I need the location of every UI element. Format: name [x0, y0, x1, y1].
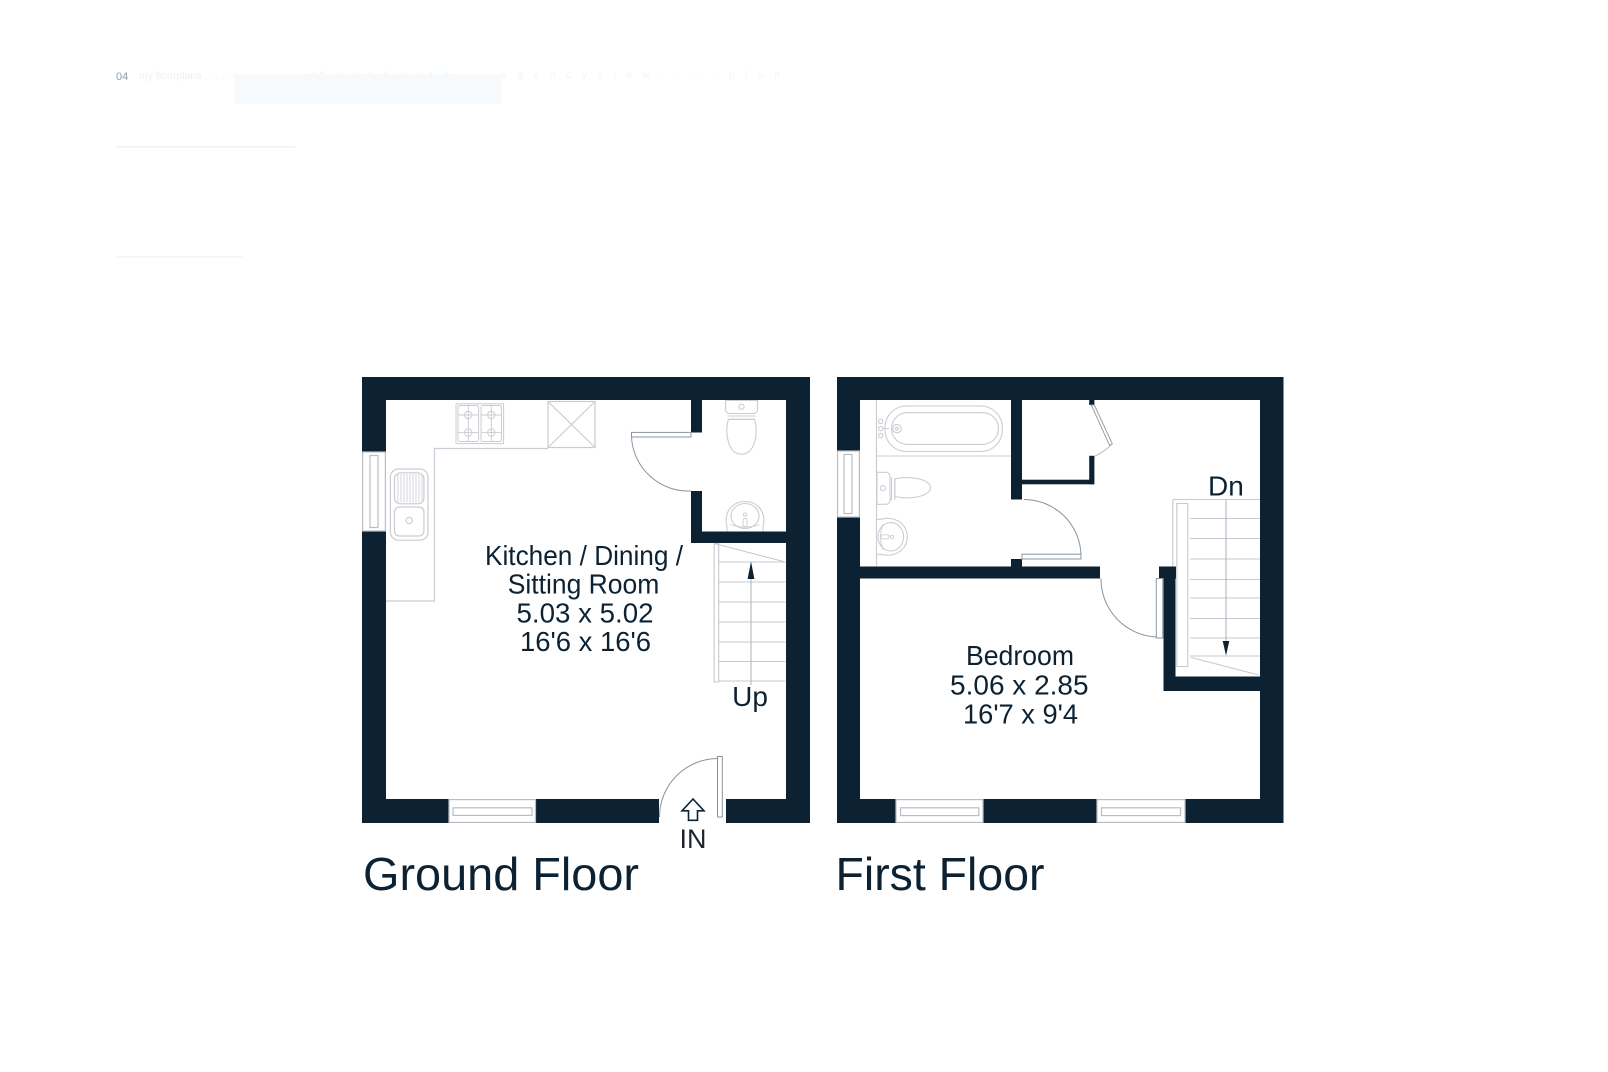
svg-text:5.03 x 5.02: 5.03 x 5.02 [517, 597, 654, 628]
svg-text:Up: Up [732, 681, 768, 712]
svg-text:Sitting Room: Sitting Room [508, 569, 660, 600]
svg-text:16'7 x 9'4: 16'7 x 9'4 [963, 699, 1078, 730]
svg-text:16'6 x 16'6: 16'6 x 16'6 [520, 626, 651, 657]
svg-text:IN: IN [680, 824, 707, 854]
svg-text:Dn: Dn [1208, 471, 1244, 502]
svg-text:my floorplans . . . . . .: my floorplans . . . . . . [139, 70, 236, 82]
svg-text:First Floor: First Floor [836, 848, 1045, 900]
svg-text:Bedroom: Bedroom [966, 640, 1074, 671]
svg-text:04: 04 [116, 71, 128, 83]
svg-text:5.06 x 2.85: 5.06 x 2.85 [950, 669, 1089, 700]
svg-text:Kitchen / Dining /: Kitchen / Dining / [485, 540, 683, 571]
svg-text:Ground Floor: Ground Floor [363, 848, 639, 900]
